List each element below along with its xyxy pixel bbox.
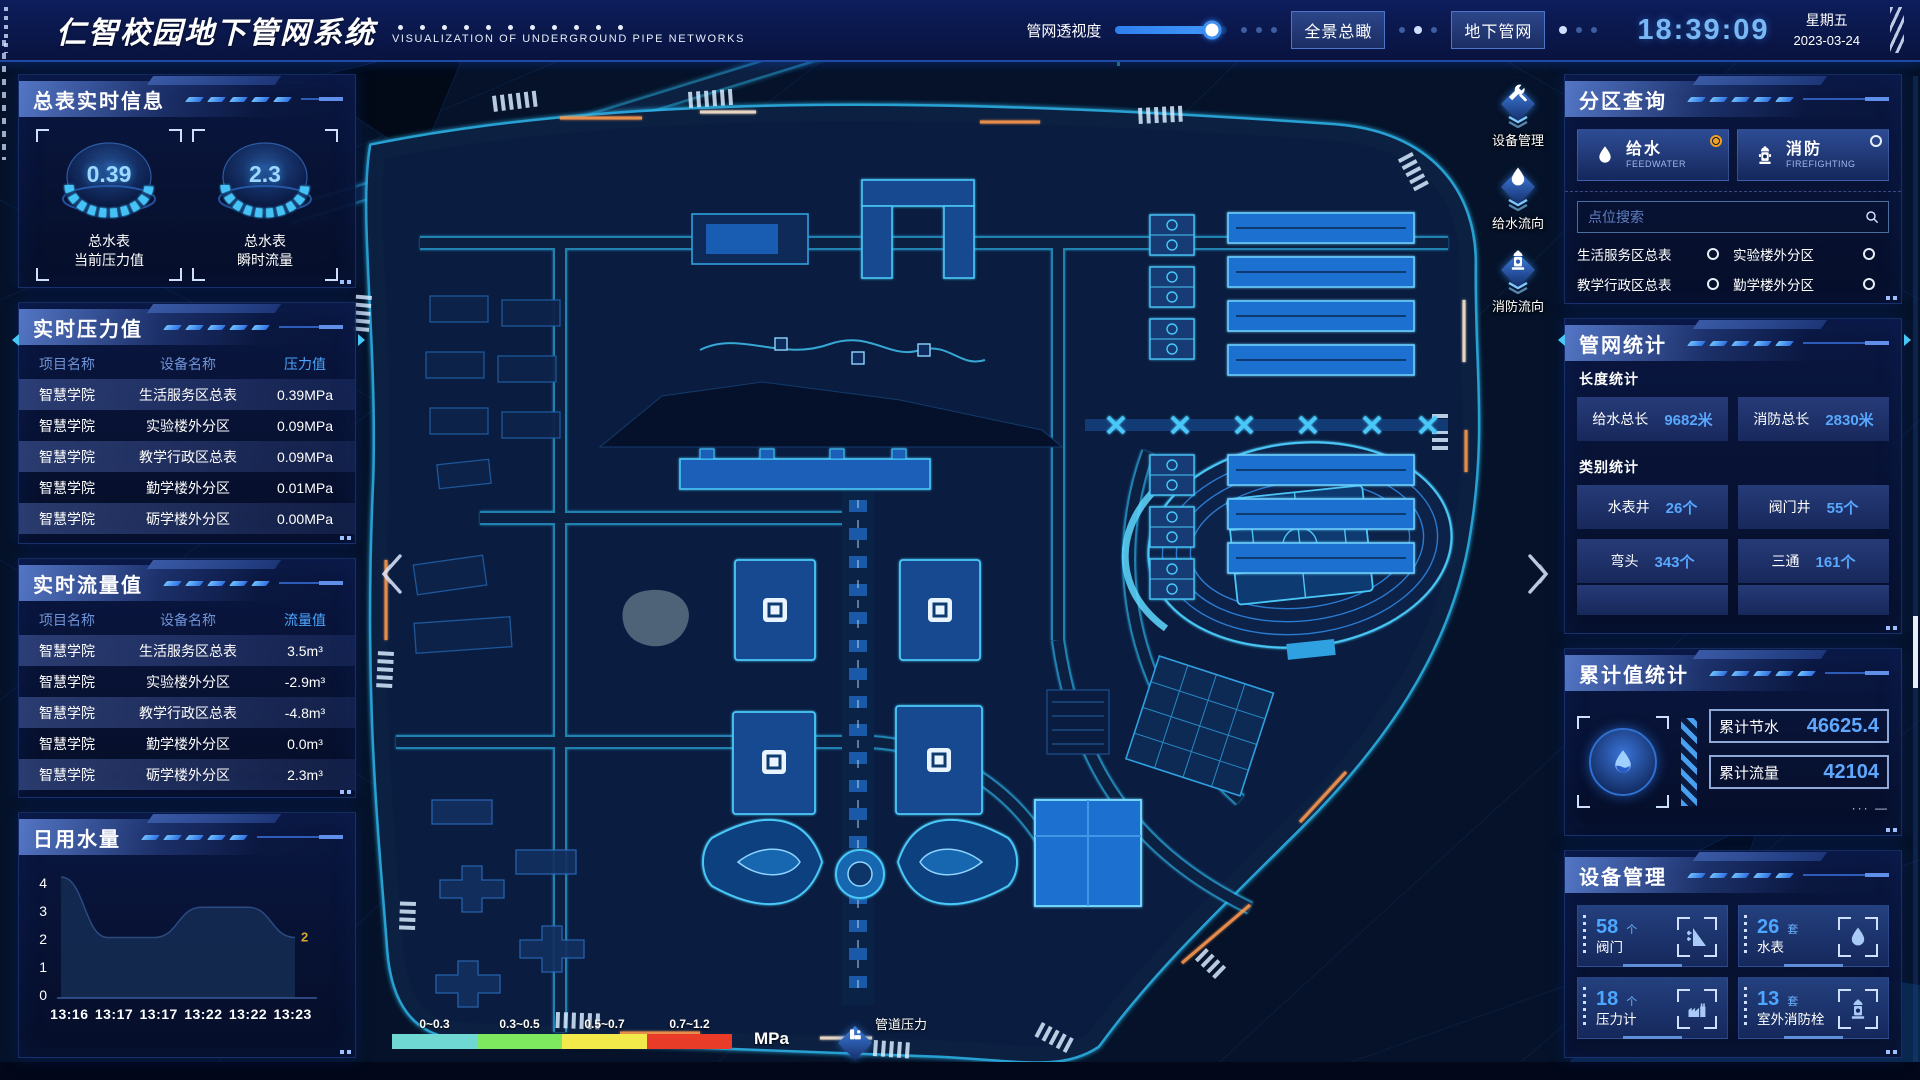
stat-label: 三通	[1771, 551, 1799, 571]
table-row: 智慧学院 教学行政区总表 0.09MPa	[19, 441, 355, 472]
panel-title: 累计值统计	[1565, 659, 1689, 688]
slashes-decor	[187, 97, 297, 102]
radio-unselected-icon[interactable]	[1863, 248, 1875, 260]
zone-list-item[interactable]: 勤学楼外分区	[1733, 269, 1889, 299]
panel-title: 设备管理	[1565, 861, 1667, 890]
table-row: 智慧学院 砺学楼外分区 0.00MPa	[19, 503, 355, 534]
cell-project: 智慧学院	[19, 765, 115, 785]
barrier-row	[1085, 417, 1448, 433]
app-subtitle: VISUALIZATION OF UNDERGROUND PIPE NETWOR…	[392, 33, 745, 45]
gauge-label: 总水表	[36, 232, 182, 251]
cell-project: 智慧学院	[19, 734, 115, 754]
title-dots-decor	[398, 25, 745, 30]
gauge-label: 当前压力值	[36, 251, 182, 270]
date: 2023-03-24	[1794, 31, 1861, 51]
cell-device: 砺学楼外分区	[115, 509, 261, 529]
length-stats-subtitle: 长度统计	[1579, 369, 1901, 389]
stat-value: 26个	[1666, 497, 1698, 518]
dot-separator	[1241, 27, 1277, 33]
length-stats: 给水总长 9682米 消防总长 2830米	[1565, 397, 1901, 441]
stat-label: 累计流量	[1719, 762, 1779, 783]
weekday: 星期五	[1806, 10, 1848, 31]
outdoor-hydrant-icon	[1846, 997, 1870, 1021]
legend-unit: MPa	[754, 1029, 789, 1049]
clipped-stats-row	[1565, 583, 1901, 615]
device-label: 水表	[1757, 940, 1798, 957]
slashes-decor	[1711, 671, 1821, 676]
hydrant-icon	[1754, 144, 1776, 166]
perspective-slider[interactable]	[1115, 26, 1227, 34]
y-tick-label: 4	[29, 875, 47, 891]
panel-realtime-pressure: 实时压力值 项目名称设备名称压力值 智慧学院 生活服务区总表 0.39MPa 智…	[18, 302, 356, 544]
stat-value: 55个	[1827, 497, 1859, 518]
zone-list-item[interactable]: 宿舍区泵房	[1733, 299, 1889, 304]
panel-title: 分区查询	[1565, 85, 1667, 114]
legend-range-label: 0.7~1.2	[647, 1017, 732, 1031]
panel-network-stats: 管网统计 长度统计 给水总长 9682米 消防总长 2830米 类别统计 水表井…	[1564, 318, 1902, 634]
cell-device: 勤学楼外分区	[115, 734, 261, 754]
stat-value: 2830米	[1825, 409, 1873, 430]
map-button-label: 给水流向	[1492, 213, 1544, 232]
cell-value: 0.39MPa	[261, 387, 349, 403]
header-bar: 仁智校园地下管网系统 VISUALIZATION OF UNDERGROUND …	[0, 0, 1920, 62]
table-row: 智慧学院 实验楼外分区 -2.9m³	[19, 666, 355, 697]
stat-chip: 水表井 26个	[1577, 485, 1728, 529]
pressure-meter-icon	[845, 1026, 865, 1046]
panel-cumulative-stats: 累计值统计 累计节水 46625.4 累计流量 42104 ··· —	[1564, 648, 1902, 836]
zone-label: 勤学楼外分区	[1733, 274, 1814, 294]
x-tick-label: 13:22	[226, 1006, 271, 1022]
scrollbar-thumb[interactable]	[1913, 616, 1918, 688]
zone-label: 生活服务区总表	[1577, 244, 1672, 264]
table-row: 智慧学院 生活服务区总表 0.39MPa	[19, 379, 355, 410]
zone-label: 教学行政区总表	[1577, 274, 1672, 294]
natatorium	[692, 214, 808, 264]
point-search	[1577, 201, 1889, 233]
panel-title: 管网统计	[1565, 329, 1667, 358]
water-meter-icon	[1846, 925, 1870, 949]
app-title: 仁智校园地下管网系统	[56, 8, 376, 52]
table-row: 智慧学院 勤学楼外分区 0.0m³	[19, 728, 355, 759]
table-row: 智慧学院 砺学楼外分区 2.3m³	[19, 759, 355, 790]
stat-label: 阀门井	[1769, 497, 1811, 517]
y-tick-label: 1	[29, 959, 47, 975]
panel-title: 日用水量	[19, 823, 121, 852]
pipe-pressure-toggle[interactable]	[835, 1017, 875, 1055]
panel-arrow-decor	[1558, 334, 1565, 346]
pressure-gauge-icon	[1685, 997, 1709, 1021]
cell-project: 智慧学院	[19, 385, 115, 405]
header-right-stripes-decor	[1890, 7, 1904, 53]
device-card-outdoor-hydrants[interactable]: 13套 室外消防栓	[1738, 977, 1889, 1039]
slashes-decor	[165, 325, 275, 330]
gauge-value: 2.3	[192, 161, 338, 188]
legend-range-label: 0~0.3	[392, 1017, 477, 1031]
flow-gauge: 2.3 总水表瞬时流量	[192, 129, 338, 281]
zone-list-item[interactable]: 实验楼外分区	[1733, 239, 1889, 269]
stat-label: 水表井	[1608, 497, 1650, 517]
mode-sublabel: FIREFIGHTING	[1786, 159, 1856, 170]
table-row: 智慧学院 实验楼外分区 0.09MPa	[19, 410, 355, 441]
radio-unselected-icon[interactable]	[1707, 278, 1719, 290]
x-tick-label: 13:17	[92, 1006, 137, 1022]
cell-project: 智慧学院	[19, 416, 115, 436]
dots-line-decor: ··· —	[1852, 801, 1889, 815]
device-label: 压力计	[1596, 1012, 1637, 1029]
map-fire-flow-button[interactable]: 消防流向	[1492, 238, 1544, 315]
pipe-pressure-label: 管道压力	[875, 1014, 927, 1033]
stat-label: 累计节水	[1719, 716, 1779, 737]
stat-chip: 阀门井 55个	[1738, 485, 1889, 529]
mode-label: 给水	[1626, 140, 1686, 159]
panel-arrow-decor	[1904, 334, 1911, 346]
perspective-slider-label: 管网透视度	[1026, 20, 1101, 41]
legend-range: 0~0.3	[392, 1017, 477, 1049]
dot-separator	[1559, 26, 1597, 34]
slashes-decor	[1689, 873, 1799, 878]
legend-ranges: 0~0.3 0.3~0.5 0.5~0.7 0.7~1.2	[392, 1017, 732, 1049]
stat-label: 给水总长	[1592, 409, 1648, 429]
legend-range: 0.7~1.2	[647, 1017, 732, 1049]
stat-label: 弯头	[1610, 551, 1638, 571]
dot-separator	[1399, 26, 1437, 34]
search-icon[interactable]	[1864, 209, 1880, 225]
page-scrollbar[interactable]	[1913, 76, 1918, 1062]
cell-project: 智慧学院	[19, 509, 115, 529]
panel-arrow-decor	[12, 334, 19, 346]
stat-value: 46625.4	[1807, 715, 1879, 738]
panel-title: 总表实时信息	[19, 85, 165, 114]
panel-realtime-flow: 实时流量值 项目名称设备名称流量值 智慧学院 生活服务区总表 3.5m³ 智慧学…	[18, 558, 356, 798]
cell-value: 0.09MPa	[261, 418, 349, 434]
point-search-input[interactable]	[1586, 208, 1864, 226]
slashes-decor	[1689, 97, 1799, 102]
zone-list-item[interactable]: 教学行政区总表	[1577, 269, 1733, 299]
firefighting-mode-button[interactable]: 消防 FIREFIGHTING	[1737, 129, 1889, 181]
zone-list-item[interactable]: 生活服务区总表	[1577, 239, 1733, 269]
gauge-label: 瞬时流量	[192, 251, 338, 270]
radio-unselected-icon[interactable]	[1707, 248, 1719, 260]
y-tick-label: 2	[29, 931, 47, 947]
category-stats-subtitle: 类别统计	[1579, 457, 1901, 477]
stat-value: 161个	[1815, 551, 1855, 572]
cell-project: 智慧学院	[19, 672, 115, 692]
x-tick-label: 13:23	[270, 1006, 315, 1022]
water-badge	[1577, 716, 1669, 808]
water-drop-icon	[1608, 747, 1638, 777]
left-edge-stripes-decor	[2, 40, 6, 160]
cell-value: 0.00MPa	[261, 511, 349, 527]
map-button-label: 消防流向	[1492, 296, 1544, 315]
stripes-decor	[1681, 718, 1697, 806]
table-header: 项目名称设备名称流量值	[19, 605, 355, 635]
cell-device: 生活服务区总表	[115, 385, 261, 405]
cell-value: 0.09MPa	[261, 449, 349, 465]
cell-value: -2.9m³	[261, 674, 349, 690]
zone-list-item[interactable]: 砺学楼外分区	[1577, 299, 1733, 304]
gym-building	[1035, 800, 1141, 906]
cell-value: 0.01MPa	[261, 480, 349, 496]
panel-zone-query: 分区查询 给水 FEEDWATER 消防 FIREFIGHTING 生活服务	[1564, 74, 1902, 304]
daily-water-chart: 43210 2	[19, 859, 355, 1003]
cumulative-saving: 累计节水 46625.4	[1709, 709, 1889, 743]
chart-y-axis: 43210	[29, 875, 51, 1003]
cell-project: 智慧学院	[19, 641, 115, 661]
map-water-flow-button[interactable]: 给水流向	[1492, 155, 1544, 232]
cell-value: 0.0m³	[261, 736, 349, 752]
hydrant-icon	[1506, 248, 1530, 272]
y-tick-label: 0	[29, 987, 47, 1003]
table-header: 项目名称设备名称压力值	[19, 349, 355, 379]
device-label: 室外消防栓	[1757, 1012, 1825, 1029]
cell-value: 2.3m³	[261, 767, 349, 783]
legend-range-label: 0.3~0.5	[477, 1017, 562, 1031]
mode-label: 消防	[1786, 140, 1856, 159]
stat-value: 42104	[1823, 761, 1879, 784]
cell-device: 教学行政区总表	[115, 703, 261, 723]
mode-sublabel: FEEDWATER	[1626, 159, 1686, 170]
pressure-legend: 0~0.3 0.3~0.5 0.5~0.7 0.7~1.2 MPa 管道压力	[392, 1014, 927, 1049]
svg-text:2: 2	[301, 930, 308, 945]
map-pan-right-arrow[interactable]	[1526, 552, 1554, 596]
slashes-decor	[1689, 341, 1799, 346]
legend-swatch	[562, 1034, 647, 1049]
category-stats: 水表井 26个 阀门井 55个 弯头 343个 三通 161个	[1565, 485, 1901, 583]
cell-device: 教学行政区总表	[115, 447, 261, 467]
panel-title: 实时流量值	[19, 569, 143, 598]
legend-range: 0.5~0.7	[562, 1017, 647, 1049]
stat-chip: 三通 161个	[1738, 539, 1889, 583]
y-tick-label: 3	[29, 903, 47, 919]
slider-knob[interactable]	[1202, 21, 1221, 40]
overview-button[interactable]: 全景总瞰	[1291, 11, 1385, 49]
cell-project: 智慧学院	[19, 447, 115, 467]
gauge-label: 总水表	[192, 232, 338, 251]
cumulative-flow: 累计流量 42104	[1709, 755, 1889, 789]
stat-chip: 给水总长 9682米	[1577, 397, 1728, 441]
stat-value: 343个	[1654, 551, 1694, 572]
water-drop-icon	[1506, 165, 1530, 189]
table-row: 智慧学院 生活服务区总表 3.5m³	[19, 635, 355, 666]
stat-chip: 消防总长 2830米	[1738, 397, 1889, 441]
x-tick-label: 13:16	[47, 1006, 92, 1022]
panel-realtime-meters: 总表实时信息 0.39 总水表当前压力值	[18, 74, 356, 288]
stat-chip: 弯头 343个	[1577, 539, 1728, 583]
x-tick-label: 13:22	[181, 1006, 226, 1022]
device-card-valves[interactable]: 58个 阀门	[1577, 905, 1728, 967]
cell-project: 智慧学院	[19, 703, 115, 723]
x-tick-label: 13:17	[136, 1006, 181, 1022]
slashes-decor	[165, 581, 275, 586]
radio-selected-icon[interactable]	[1710, 135, 1722, 147]
zone-list: 生活服务区总表 实验楼外分区 教学行政区总表 勤学楼外分区 砺学楼外分区 宿舍区…	[1565, 233, 1901, 304]
chart-x-axis: 13:1613:1713:1713:2213:2213:23	[47, 1006, 315, 1022]
cell-value: 3.5m³	[261, 643, 349, 659]
pressure-table: 智慧学院 生活服务区总表 0.39MPa 智慧学院 实验楼外分区 0.09MPa…	[19, 379, 355, 534]
panel-daily-water: 日用水量 43210 2 13:1613:1713:1713:2213:2213…	[18, 812, 356, 1058]
tools-icon	[1505, 81, 1531, 107]
valve-icon	[1685, 925, 1709, 949]
slashes-decor	[143, 835, 253, 840]
zone-label: 实验楼外分区	[1733, 244, 1814, 264]
cell-value: -4.8m³	[261, 705, 349, 721]
device-label: 阀门	[1596, 940, 1637, 957]
cell-device: 生活服务区总表	[115, 641, 261, 661]
radio-unselected-icon[interactable]	[1863, 278, 1875, 290]
cell-device: 实验楼外分区	[115, 416, 261, 436]
cell-project: 智慧学院	[19, 478, 115, 498]
table-row: 智慧学院 勤学楼外分区 0.01MPa	[19, 472, 355, 503]
radio-unselected-icon[interactable]	[1870, 135, 1882, 147]
cell-device: 实验楼外分区	[115, 672, 261, 692]
legend-range-label: 0.5~0.7	[562, 1017, 647, 1031]
map-pan-left-arrow[interactable]	[376, 552, 404, 596]
device-card-pressure-gauges[interactable]: 18个 压力计	[1577, 977, 1728, 1039]
map-button-label: 设备管理	[1492, 130, 1544, 149]
stat-value: 9682米	[1664, 409, 1712, 430]
water-drop-icon	[1594, 144, 1616, 166]
panel-arrow-decor	[358, 334, 365, 346]
panel-title: 实时压力值	[19, 313, 143, 342]
map-device-management-button[interactable]: 设备管理	[1492, 72, 1544, 149]
cell-device: 砺学楼外分区	[115, 765, 261, 785]
feedwater-mode-button[interactable]: 给水 FEEDWATER	[1577, 129, 1729, 181]
clock: 18:39:09	[1637, 14, 1769, 47]
pressure-gauge: 0.39 总水表当前压力值	[36, 129, 182, 281]
flow-table: 智慧学院 生活服务区总表 3.5m³ 智慧学院 实验楼外分区 -2.9m³ 智慧…	[19, 635, 355, 790]
table-row: 智慧学院 教学行政区总表 -4.8m³	[19, 697, 355, 728]
cell-device: 勤学楼外分区	[115, 478, 261, 498]
device-card-water-meters[interactable]: 26套 水表	[1738, 905, 1889, 967]
legend-swatch	[477, 1034, 562, 1049]
stat-label: 消防总长	[1753, 409, 1809, 429]
underground-network-button[interactable]: 地下管网	[1451, 11, 1545, 49]
gauge-value: 0.39	[36, 161, 182, 188]
legend-swatch	[647, 1034, 732, 1049]
legend-swatch	[392, 1034, 477, 1049]
legend-range: 0.3~0.5	[477, 1017, 562, 1049]
parking-lot	[1047, 690, 1109, 754]
panel-device-management: 设备管理 58个 阀门 26套 水表 18个 压力计 13套 室外消防栓	[1564, 850, 1902, 1058]
